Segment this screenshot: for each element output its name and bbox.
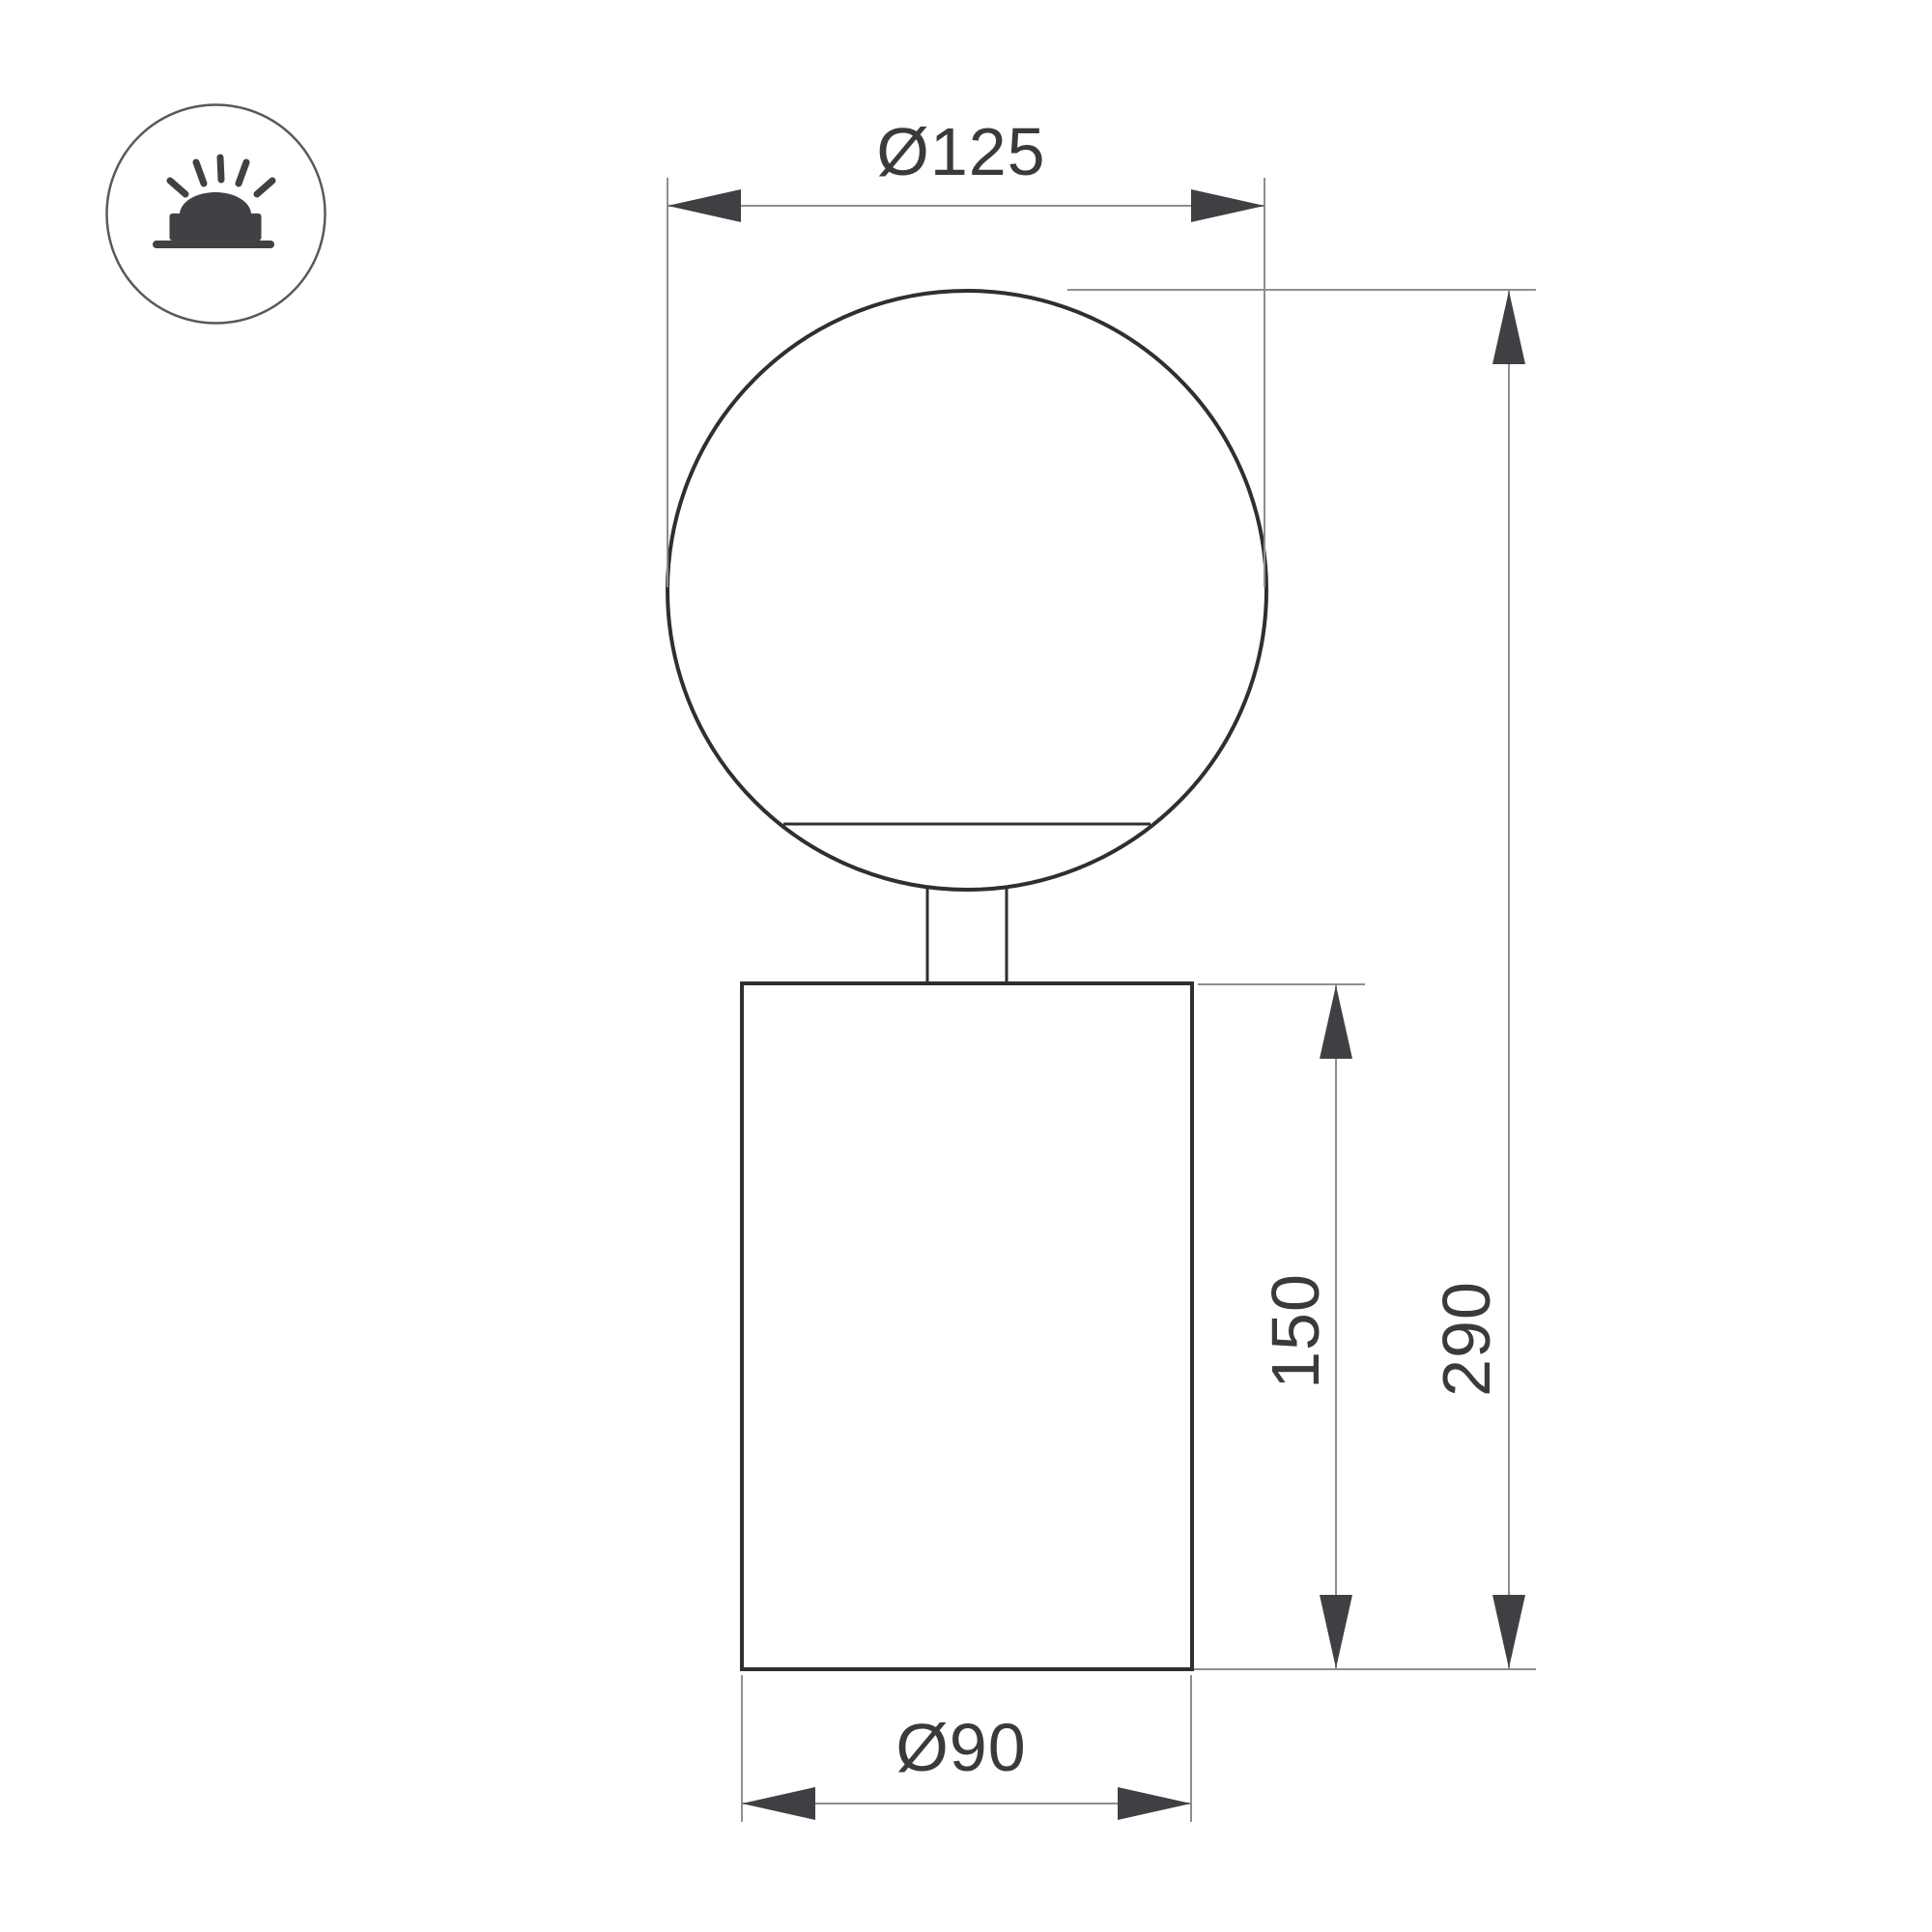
light-rays-icon [170,157,272,194]
arrow-left-icon [742,1787,815,1820]
dimension-label-body-height: 150 [1258,1273,1333,1389]
cylinder-body-outline [742,983,1192,1669]
dimension-label-total-height: 290 [1429,1281,1504,1397]
lamp-body-icon [170,213,262,241]
dimension-label-sphere-diameter: Ø125 [876,114,1045,189]
sphere-outline [668,291,1266,890]
arrow-right-icon [1118,1787,1191,1820]
arrow-up-icon [1320,985,1352,1059]
dimension-drawing: Ø125 290 150 Ø90 [0,0,1932,1932]
arrow-down-icon [1492,1595,1525,1668]
surface-mount-lamp-icon [107,105,326,324]
dimension-total-height: 290 [1067,290,1536,1669]
dimension-sphere-diameter: Ø125 [668,114,1264,587]
dimension-label-body-diameter: Ø90 [895,1710,1026,1785]
arrow-left-icon [668,189,741,222]
dimension-body-height: 150 [1198,984,1365,1668]
arrow-up-icon [1492,291,1525,364]
arrow-down-icon [1320,1595,1352,1668]
drawing-canvas: Ø125 290 150 Ø90 [0,0,1932,1932]
dimension-body-diameter: Ø90 [742,1675,1191,1822]
lamp-base-icon [153,241,274,248]
product-outline [668,291,1266,1669]
lamp-dome-icon [180,192,251,214]
arrow-right-icon [1191,189,1264,222]
